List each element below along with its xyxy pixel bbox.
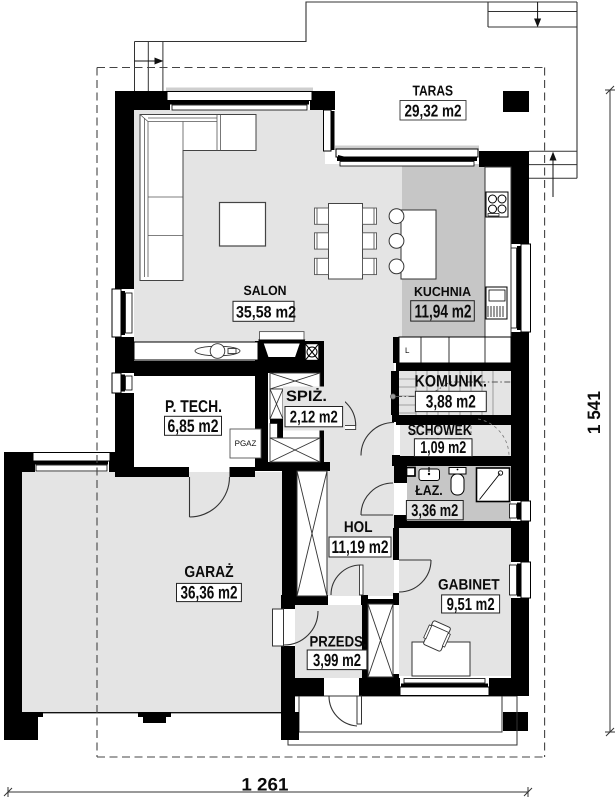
svg-text:HOL: HOL [344, 519, 373, 536]
svg-text:36,36 m2: 36,36 m2 [181, 583, 238, 603]
svg-text:SALON: SALON [244, 283, 287, 298]
svg-text:P. TECH.: P. TECH. [165, 397, 222, 416]
svg-text:3,36 m2: 3,36 m2 [411, 501, 458, 520]
svg-text:SPIŻ.: SPIŻ. [286, 388, 327, 405]
svg-text:PGAZ: PGAZ [235, 439, 257, 448]
svg-text:KOMUNIK.: KOMUNIK. [415, 373, 488, 391]
svg-text:1 541: 1 541 [584, 391, 604, 434]
svg-text:1 261: 1 261 [241, 774, 288, 794]
svg-text:2,12 m2: 2,12 m2 [290, 408, 338, 427]
svg-text:29,32 m2: 29,32 m2 [405, 101, 462, 120]
svg-text:ŁAZ.: ŁAZ. [415, 482, 443, 498]
svg-text:3,99 m2: 3,99 m2 [313, 650, 361, 670]
svg-text:6,85 m2: 6,85 m2 [168, 416, 219, 436]
svg-text:3,88 m2: 3,88 m2 [426, 392, 476, 412]
svg-text:PRZEDS.: PRZEDS. [310, 633, 367, 650]
svg-text:GABINET: GABINET [438, 577, 500, 594]
svg-text:1,09 m2: 1,09 m2 [420, 438, 466, 457]
svg-text:11,19 m2: 11,19 m2 [332, 537, 389, 557]
svg-text:35,58 m2: 35,58 m2 [236, 304, 296, 322]
svg-text:SCHOWEK: SCHOWEK [408, 422, 472, 439]
svg-text:KUCHNIA: KUCHNIA [414, 284, 472, 299]
svg-text:TARAS: TARAS [413, 83, 454, 99]
svg-text:9,51 m2: 9,51 m2 [447, 594, 495, 614]
svg-text:GARAŻ: GARAŻ [184, 563, 233, 581]
svg-text:11,94 m2: 11,94 m2 [415, 301, 472, 322]
svg-text:L: L [405, 346, 410, 355]
